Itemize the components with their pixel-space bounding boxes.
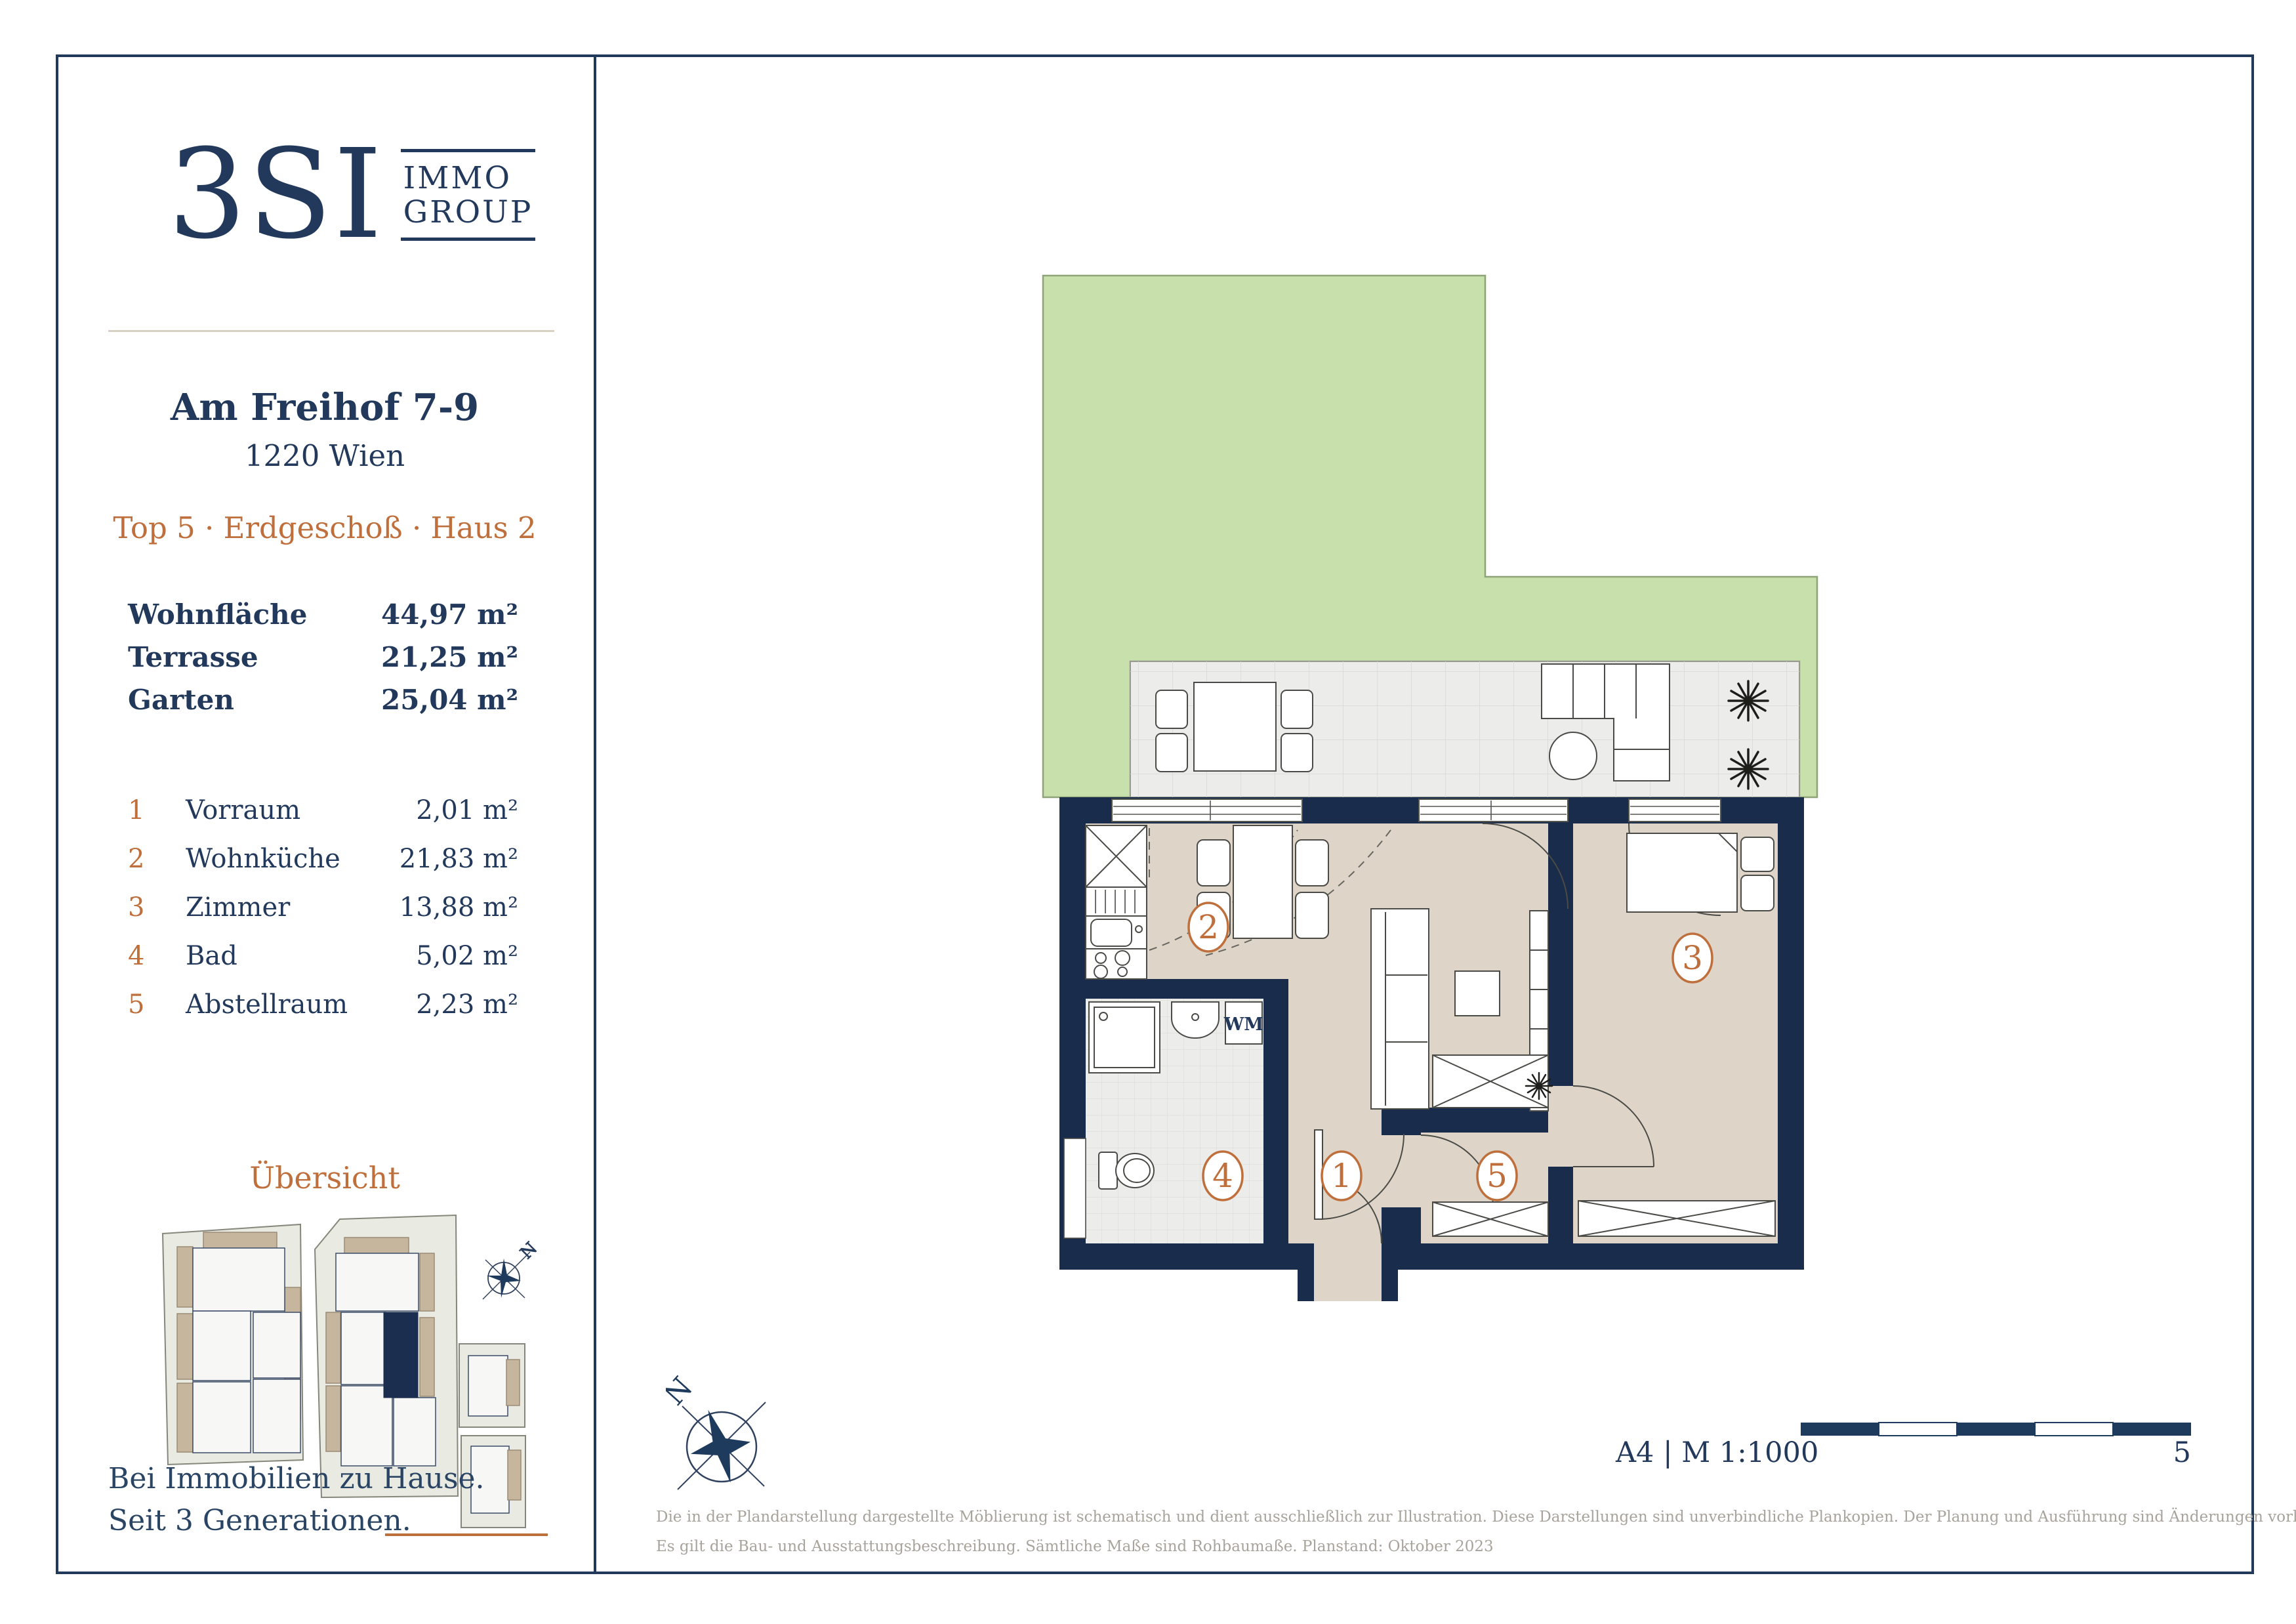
area-value: 25,04 m² (381, 684, 518, 723)
area-label: Terrasse (128, 641, 258, 680)
room-name: Bad (186, 941, 416, 978)
room-row: 4 Bad 5,02 m² (128, 941, 518, 978)
area-label: Wohnfläche (128, 598, 307, 638)
coffee-table (1455, 971, 1500, 1016)
dining-chair (1296, 840, 1328, 886)
dining-table (1233, 825, 1292, 938)
tagline-line2: Seit 3 Generationen. (108, 1504, 411, 1537)
sidebar-divider (594, 54, 596, 1572)
room-row: 1 Vorraum 2,01 m² (128, 795, 518, 832)
toilet-tank (1099, 1152, 1117, 1189)
room-area: 2,23 m² (416, 989, 518, 1026)
area-row: Terrasse 21,25 m² (128, 641, 518, 680)
room-number: 3 (128, 892, 186, 929)
room-row: 3 Zimmer 13,88 m² (128, 892, 518, 929)
tagline-line1: Bei Immobilien zu Hause. (108, 1462, 485, 1495)
kitchen-sink (1091, 919, 1132, 946)
plan-room-label-4: 4 (1212, 1157, 1233, 1195)
scale-bar: A4 | M 1:100 0 5 (1601, 1404, 2230, 1476)
site-compass-n-label: N (517, 1239, 541, 1263)
format-scale-label: A4 | M 1:100 (1615, 1436, 1801, 1469)
compass-rose-icon: N (666, 1368, 777, 1509)
bed-pillow (1741, 837, 1774, 871)
compass-n-label: N (666, 1371, 699, 1412)
unit-descriptor: Top 5 · Erdgeschoß · Haus 2 (56, 510, 594, 545)
room-area: 13,88 m² (400, 892, 518, 929)
shower (1089, 1002, 1160, 1073)
room-number: 5 (128, 989, 186, 1026)
area-row: Garten 25,04 m² (128, 684, 518, 723)
washing-machine-label: WM (1223, 1014, 1263, 1035)
terrace-chair (1156, 734, 1187, 772)
terrace-dining-table (1194, 682, 1276, 771)
kitchen-counter (1086, 825, 1147, 979)
room-area: 21,83 m² (400, 844, 518, 881)
room-area: 5,02 m² (416, 941, 518, 978)
bed (1627, 833, 1737, 912)
plan-room-label-1: 1 (1331, 1157, 1352, 1195)
plan-room-label-3: 3 (1682, 939, 1703, 977)
site-highlighted-unit (384, 1312, 418, 1398)
terrace-chair (1156, 690, 1187, 728)
sofa (1371, 909, 1429, 1109)
scale-bar-segments (1801, 1423, 2191, 1436)
room-name: Wohnküche (186, 844, 400, 881)
window-bedroom (1629, 799, 1721, 822)
overview-title: Übersicht (56, 1160, 594, 1196)
area-value: 44,97 m² (381, 598, 518, 638)
room-number: 4 (128, 941, 186, 978)
plan-room-label-5: 5 (1486, 1157, 1507, 1195)
kitchen-faucet (1136, 926, 1142, 932)
terrace-chair (1281, 734, 1313, 772)
kitchen-drainer (1086, 887, 1147, 916)
logo-separator-line (108, 330, 554, 332)
room-row: 2 Wohnküche 21,83 m² (128, 844, 518, 881)
wall-niche (1064, 1138, 1086, 1238)
window-livingroom-left (1112, 799, 1302, 822)
area-row: Wohnfläche 44,97 m² (128, 598, 518, 638)
apartment-floor-plan: WM 1 2 3 4 5 (1036, 262, 1837, 1312)
logo-mark: 3SI (168, 146, 384, 244)
plan-room-label-2: 2 (1198, 908, 1219, 946)
room-area: 2,01 m² (416, 795, 518, 832)
disclaimer-text: Die in der Plandarstellung dargestellte … (656, 1503, 2257, 1562)
logo-wordmark: IMMO GROUP (401, 149, 536, 241)
tagline-accent-rule (385, 1533, 548, 1536)
address-line1: Am Freihof 7-9 (56, 386, 594, 429)
room-name: Abstellraum (186, 989, 416, 1026)
disclaimer-line1: Die in der Plandarstellung dargestellte … (656, 1503, 2257, 1532)
room-row: 5 Abstellraum 2,23 m² (128, 989, 518, 1026)
floorplan-document-page: { "colors": { "navy_text": "#22395c", "w… (0, 0, 2296, 1624)
room-number: 2 (128, 844, 186, 881)
room-name: Zimmer (186, 892, 400, 929)
terrace-door-livingroom (1419, 799, 1568, 822)
dining-chair (1296, 892, 1328, 938)
terrace-round-table (1549, 732, 1597, 780)
dining-chair (1197, 840, 1230, 886)
site-compass-icon: N (483, 1239, 541, 1299)
area-value: 21,25 m² (381, 641, 518, 680)
site-building-left (193, 1248, 300, 1453)
room-number: 1 (128, 795, 186, 832)
terrace-chair (1281, 690, 1313, 728)
scale-zero-label: 0 (1801, 1436, 1818, 1469)
scale-five-label: 5 (2173, 1436, 2191, 1469)
disclaimer-line2: Es gilt die Bau- und Ausstattungsbeschre… (656, 1532, 2257, 1562)
logo-word-immo: IMMO (403, 161, 533, 196)
logo-word-group: GROUP (403, 196, 533, 230)
area-label: Garten (128, 684, 234, 723)
bed-pillow (1741, 875, 1774, 911)
address-line2: 1220 Wien (56, 438, 594, 473)
room-name: Vorraum (186, 795, 416, 832)
company-logo: 3SI IMMO GROUP (168, 146, 535, 244)
